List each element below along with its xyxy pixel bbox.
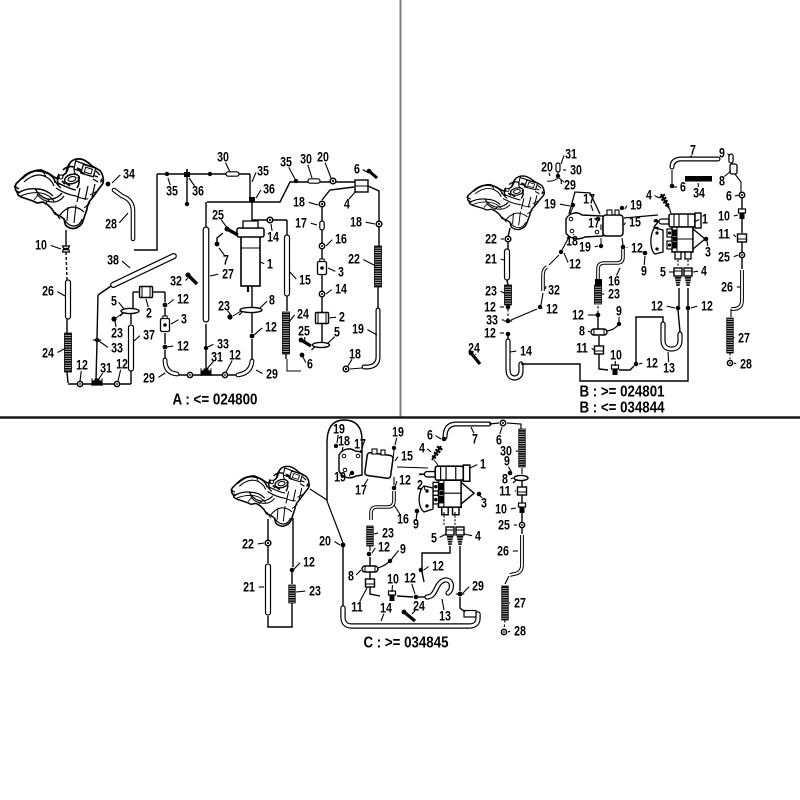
svg-text:25: 25 (298, 324, 310, 339)
svg-text:33: 33 (111, 341, 123, 356)
svg-text:34: 34 (123, 167, 135, 182)
svg-text:20: 20 (541, 160, 553, 175)
svg-text:22: 22 (348, 252, 360, 267)
svg-text:35: 35 (280, 155, 292, 170)
svg-text:10: 10 (495, 502, 507, 517)
svg-text:21: 21 (485, 252, 497, 267)
svg-text:15: 15 (629, 215, 641, 230)
svg-text:31: 31 (211, 350, 223, 365)
svg-text:23: 23 (111, 326, 123, 341)
svg-text:19: 19 (579, 240, 591, 255)
svg-text:19: 19 (544, 197, 556, 212)
svg-text:25: 25 (718, 250, 730, 265)
svg-text:8: 8 (579, 324, 585, 339)
svg-text:12: 12 (303, 555, 315, 570)
svg-text:27: 27 (514, 596, 526, 611)
svg-text:18: 18 (350, 215, 362, 230)
svg-text:17: 17 (354, 437, 366, 452)
svg-text:9: 9 (616, 304, 622, 319)
svg-text:23: 23 (218, 299, 230, 314)
svg-text:29: 29 (266, 367, 278, 382)
svg-text:20: 20 (317, 150, 329, 165)
svg-text:10: 10 (387, 572, 399, 587)
svg-text:12: 12 (229, 348, 241, 363)
svg-text:34: 34 (693, 186, 705, 201)
svg-text:B : >= 024801: B : >= 024801 (580, 384, 665, 401)
svg-text:12: 12 (378, 540, 390, 555)
svg-text:36: 36 (263, 182, 275, 197)
svg-text:9: 9 (504, 454, 510, 469)
svg-text:4: 4 (419, 441, 425, 456)
svg-text:5: 5 (334, 325, 340, 340)
svg-text:5: 5 (111, 294, 117, 309)
svg-text:28: 28 (740, 357, 752, 372)
svg-text:7: 7 (472, 432, 478, 447)
svg-text:24: 24 (413, 599, 425, 614)
svg-text:27: 27 (222, 267, 234, 282)
svg-text:12: 12 (546, 302, 558, 317)
svg-text:1: 1 (702, 212, 708, 227)
svg-text:6: 6 (726, 189, 732, 204)
svg-text:17: 17 (583, 192, 595, 207)
svg-text:26: 26 (497, 544, 509, 559)
svg-text:37: 37 (143, 328, 155, 343)
svg-text:18: 18 (349, 347, 361, 362)
svg-text:12: 12 (572, 308, 584, 323)
svg-text:30: 30 (217, 150, 229, 165)
svg-text:15: 15 (299, 273, 311, 288)
svg-text:36: 36 (192, 184, 204, 199)
svg-text:11: 11 (718, 227, 730, 242)
svg-text:12: 12 (177, 292, 189, 307)
svg-text:12: 12 (701, 299, 713, 314)
svg-text:12: 12 (76, 358, 88, 373)
svg-text:28: 28 (514, 624, 526, 639)
svg-text:27: 27 (738, 331, 750, 346)
svg-text:11: 11 (576, 341, 588, 356)
svg-text:8: 8 (348, 569, 354, 584)
svg-text:10: 10 (35, 238, 47, 253)
svg-text:19: 19 (334, 470, 346, 485)
svg-text:2: 2 (339, 310, 345, 325)
svg-text:12: 12 (177, 339, 189, 354)
svg-text:9: 9 (400, 542, 406, 557)
svg-text:32: 32 (548, 283, 560, 298)
svg-text:19: 19 (392, 425, 404, 440)
svg-text:3: 3 (181, 312, 187, 327)
svg-text:17: 17 (355, 483, 367, 498)
svg-text:B : <= 034844: B : <= 034844 (580, 400, 665, 417)
svg-text:19: 19 (352, 322, 364, 337)
svg-text:5: 5 (431, 531, 437, 546)
svg-text:20: 20 (319, 534, 331, 549)
svg-text:19: 19 (630, 198, 642, 213)
svg-text:12: 12 (631, 241, 643, 256)
svg-text:29: 29 (472, 579, 484, 594)
svg-text:14: 14 (520, 344, 532, 359)
svg-text:5: 5 (660, 265, 666, 280)
svg-text:2: 2 (417, 478, 423, 493)
svg-text:C : >= 034845: C : >= 034845 (364, 635, 449, 652)
svg-text:7: 7 (690, 143, 696, 158)
svg-text:23: 23 (309, 584, 321, 599)
svg-text:24: 24 (468, 341, 480, 356)
svg-text:18: 18 (338, 434, 350, 449)
svg-text:7: 7 (223, 253, 229, 268)
svg-text:9: 9 (641, 264, 647, 279)
svg-text:17: 17 (295, 216, 307, 231)
svg-text:14: 14 (380, 601, 392, 616)
svg-text:12: 12 (404, 571, 416, 586)
svg-text:24: 24 (297, 307, 309, 322)
svg-text:22: 22 (485, 232, 497, 247)
svg-text:22: 22 (242, 537, 254, 552)
svg-text:13: 13 (439, 609, 451, 624)
svg-text:28: 28 (105, 217, 117, 232)
svg-text:12: 12 (432, 559, 444, 574)
svg-text:13: 13 (663, 361, 675, 376)
svg-text:12: 12 (116, 357, 128, 372)
svg-text:12: 12 (646, 356, 658, 371)
svg-text:12: 12 (484, 326, 496, 341)
svg-text:12: 12 (651, 299, 663, 314)
svg-text:9: 9 (413, 517, 419, 532)
svg-text:29: 29 (143, 371, 155, 386)
svg-text:6: 6 (427, 428, 433, 443)
svg-text:16: 16 (397, 512, 409, 527)
svg-text:14: 14 (335, 282, 347, 297)
svg-text:18: 18 (293, 195, 305, 210)
svg-text:11: 11 (499, 484, 511, 499)
svg-text:4: 4 (475, 529, 481, 544)
svg-text:24: 24 (42, 346, 54, 361)
svg-text:29: 29 (564, 178, 576, 193)
svg-text:8: 8 (719, 174, 725, 189)
svg-text:30: 30 (570, 163, 582, 178)
svg-text:30: 30 (300, 152, 312, 167)
svg-text:38: 38 (107, 253, 119, 268)
svg-text:26: 26 (721, 280, 733, 295)
svg-text:2: 2 (653, 217, 659, 232)
svg-text:25: 25 (212, 208, 224, 223)
svg-text:4: 4 (701, 264, 707, 279)
svg-text:14: 14 (267, 230, 279, 245)
svg-text:17: 17 (588, 216, 600, 231)
svg-text:15: 15 (401, 449, 413, 464)
svg-text:3: 3 (705, 245, 711, 260)
svg-text:8: 8 (269, 293, 275, 308)
svg-text:31: 31 (100, 361, 112, 376)
svg-text:21: 21 (243, 580, 255, 595)
svg-text:31: 31 (565, 147, 577, 162)
svg-text:10: 10 (610, 348, 622, 363)
svg-text:4: 4 (646, 188, 652, 203)
svg-text:9: 9 (719, 146, 725, 161)
svg-text:1: 1 (267, 257, 273, 272)
svg-text:A : <= 024800: A : <= 024800 (173, 392, 258, 409)
svg-text:6: 6 (307, 357, 313, 372)
svg-text:16: 16 (335, 232, 347, 247)
svg-text:23: 23 (608, 287, 620, 302)
svg-text:35: 35 (257, 164, 269, 179)
svg-text:26: 26 (42, 284, 54, 299)
svg-text:4: 4 (344, 197, 350, 212)
svg-text:6: 6 (680, 180, 686, 195)
svg-text:11: 11 (351, 600, 363, 615)
svg-text:10: 10 (718, 209, 730, 224)
svg-text:25: 25 (498, 518, 510, 533)
svg-text:3: 3 (481, 496, 487, 511)
svg-text:12: 12 (399, 473, 411, 488)
svg-text:1: 1 (480, 457, 486, 472)
svg-text:6: 6 (354, 162, 360, 177)
svg-text:12: 12 (265, 320, 277, 335)
svg-text:35: 35 (166, 184, 178, 199)
svg-text:23: 23 (382, 526, 394, 541)
svg-text:12: 12 (569, 257, 581, 272)
svg-text:18: 18 (566, 234, 578, 249)
svg-text:2: 2 (146, 306, 152, 321)
svg-text:23: 23 (485, 284, 497, 299)
svg-text:32: 32 (170, 274, 182, 289)
svg-text:3: 3 (338, 265, 344, 280)
